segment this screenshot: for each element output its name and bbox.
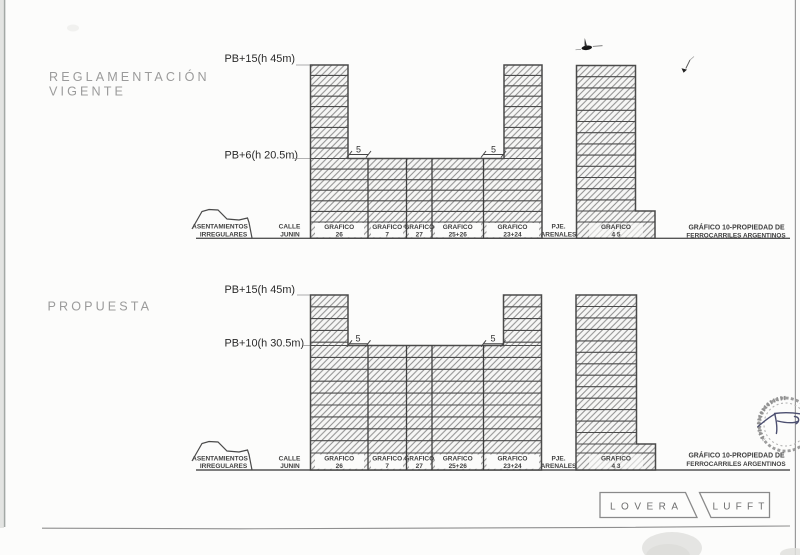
- svg-text:ASENTAMIENTOS: ASENTAMIENTOS: [192, 224, 248, 231]
- svg-text:25+26: 25+26: [449, 232, 468, 239]
- svg-text:PB+10(h 30.5m): PB+10(h 30.5m): [225, 338, 305, 350]
- svg-text:GRAFICO: GRAFICO: [443, 224, 473, 231]
- svg-text:IRREGULARES: IRREGULARES: [200, 231, 248, 238]
- svg-text:ARENALES: ARENALES: [541, 463, 577, 470]
- svg-text:5: 5: [490, 334, 495, 344]
- svg-text:REGLAMENTACIÓN: REGLAMENTACIÓN: [49, 69, 210, 84]
- svg-text:23+24: 23+24: [503, 232, 522, 239]
- svg-text:5: 5: [491, 144, 496, 154]
- svg-text:23+24: 23+24: [503, 463, 522, 470]
- svg-text:GRÁFICO 10-PROPIEDAD DE: GRÁFICO 10-PROPIEDAD DE: [688, 450, 785, 459]
- svg-text:JUNIN: JUNIN: [280, 463, 300, 470]
- svg-text:LUFFT: LUFFT: [713, 502, 770, 513]
- svg-text:5: 5: [355, 334, 360, 344]
- svg-text:GRAFICO: GRAFICO: [498, 224, 528, 231]
- svg-text:26: 26: [336, 463, 344, 470]
- svg-text:PB+15(h 45m): PB+15(h 45m): [225, 284, 296, 296]
- svg-text:JUNIN: JUNIN: [280, 231, 300, 238]
- svg-text:PB+15(h 45m): PB+15(h 45m): [225, 53, 296, 65]
- svg-text:7: 7: [385, 232, 389, 239]
- svg-text:4 5: 4 5: [611, 232, 620, 239]
- svg-text:7: 7: [385, 463, 389, 470]
- svg-text:GRAFICO: GRAFICO: [601, 456, 631, 463]
- svg-text:PROPUESTA: PROPUESTA: [48, 300, 153, 314]
- svg-text:PJE.: PJE.: [551, 224, 565, 231]
- svg-text:CALLE: CALLE: [279, 224, 301, 231]
- svg-text:GRAFICO: GRAFICO: [372, 224, 402, 231]
- svg-text:CALLE: CALLE: [279, 455, 301, 462]
- svg-text:GRAFICO: GRAFICO: [372, 456, 402, 463]
- svg-text:GRAFICO: GRAFICO: [324, 224, 354, 231]
- svg-text:4 3: 4 3: [611, 463, 620, 470]
- svg-text:PB+6(h 20.5m): PB+6(h 20.5m): [225, 149, 299, 161]
- svg-text:5: 5: [356, 144, 361, 154]
- svg-text:GRAFICO: GRAFICO: [404, 224, 434, 231]
- svg-text:25+26: 25+26: [449, 463, 468, 470]
- svg-text:GRAFICO: GRAFICO: [443, 456, 473, 463]
- svg-text:ASENTAMIENTOS: ASENTAMIENTOS: [192, 455, 248, 462]
- svg-text:27: 27: [416, 232, 424, 239]
- svg-text:FERROCARRILES ARGENTINOS: FERROCARRILES ARGENTINOS: [686, 233, 786, 240]
- svg-text:PJE.: PJE.: [551, 455, 565, 462]
- svg-text:GRAFICO: GRAFICO: [498, 456, 528, 463]
- svg-text:LOVERA: LOVERA: [610, 502, 684, 513]
- svg-text:GRAFICO: GRAFICO: [324, 456, 354, 463]
- svg-text:GRÁFICO 10-PROPIEDAD DE: GRÁFICO 10-PROPIEDAD DE: [688, 222, 785, 231]
- svg-text:27: 27: [416, 463, 424, 470]
- svg-text:26: 26: [336, 232, 344, 239]
- svg-text:FERROCARRILES ARGENTINOS: FERROCARRILES ARGENTINOS: [686, 461, 786, 468]
- svg-text:GRAFICO: GRAFICO: [404, 456, 434, 463]
- svg-text:IRREGULARES: IRREGULARES: [200, 463, 248, 470]
- svg-text:VIGENTE: VIGENTE: [49, 85, 126, 99]
- svg-text:ARENALES: ARENALES: [541, 231, 577, 238]
- svg-text:GRAFICO: GRAFICO: [601, 224, 631, 231]
